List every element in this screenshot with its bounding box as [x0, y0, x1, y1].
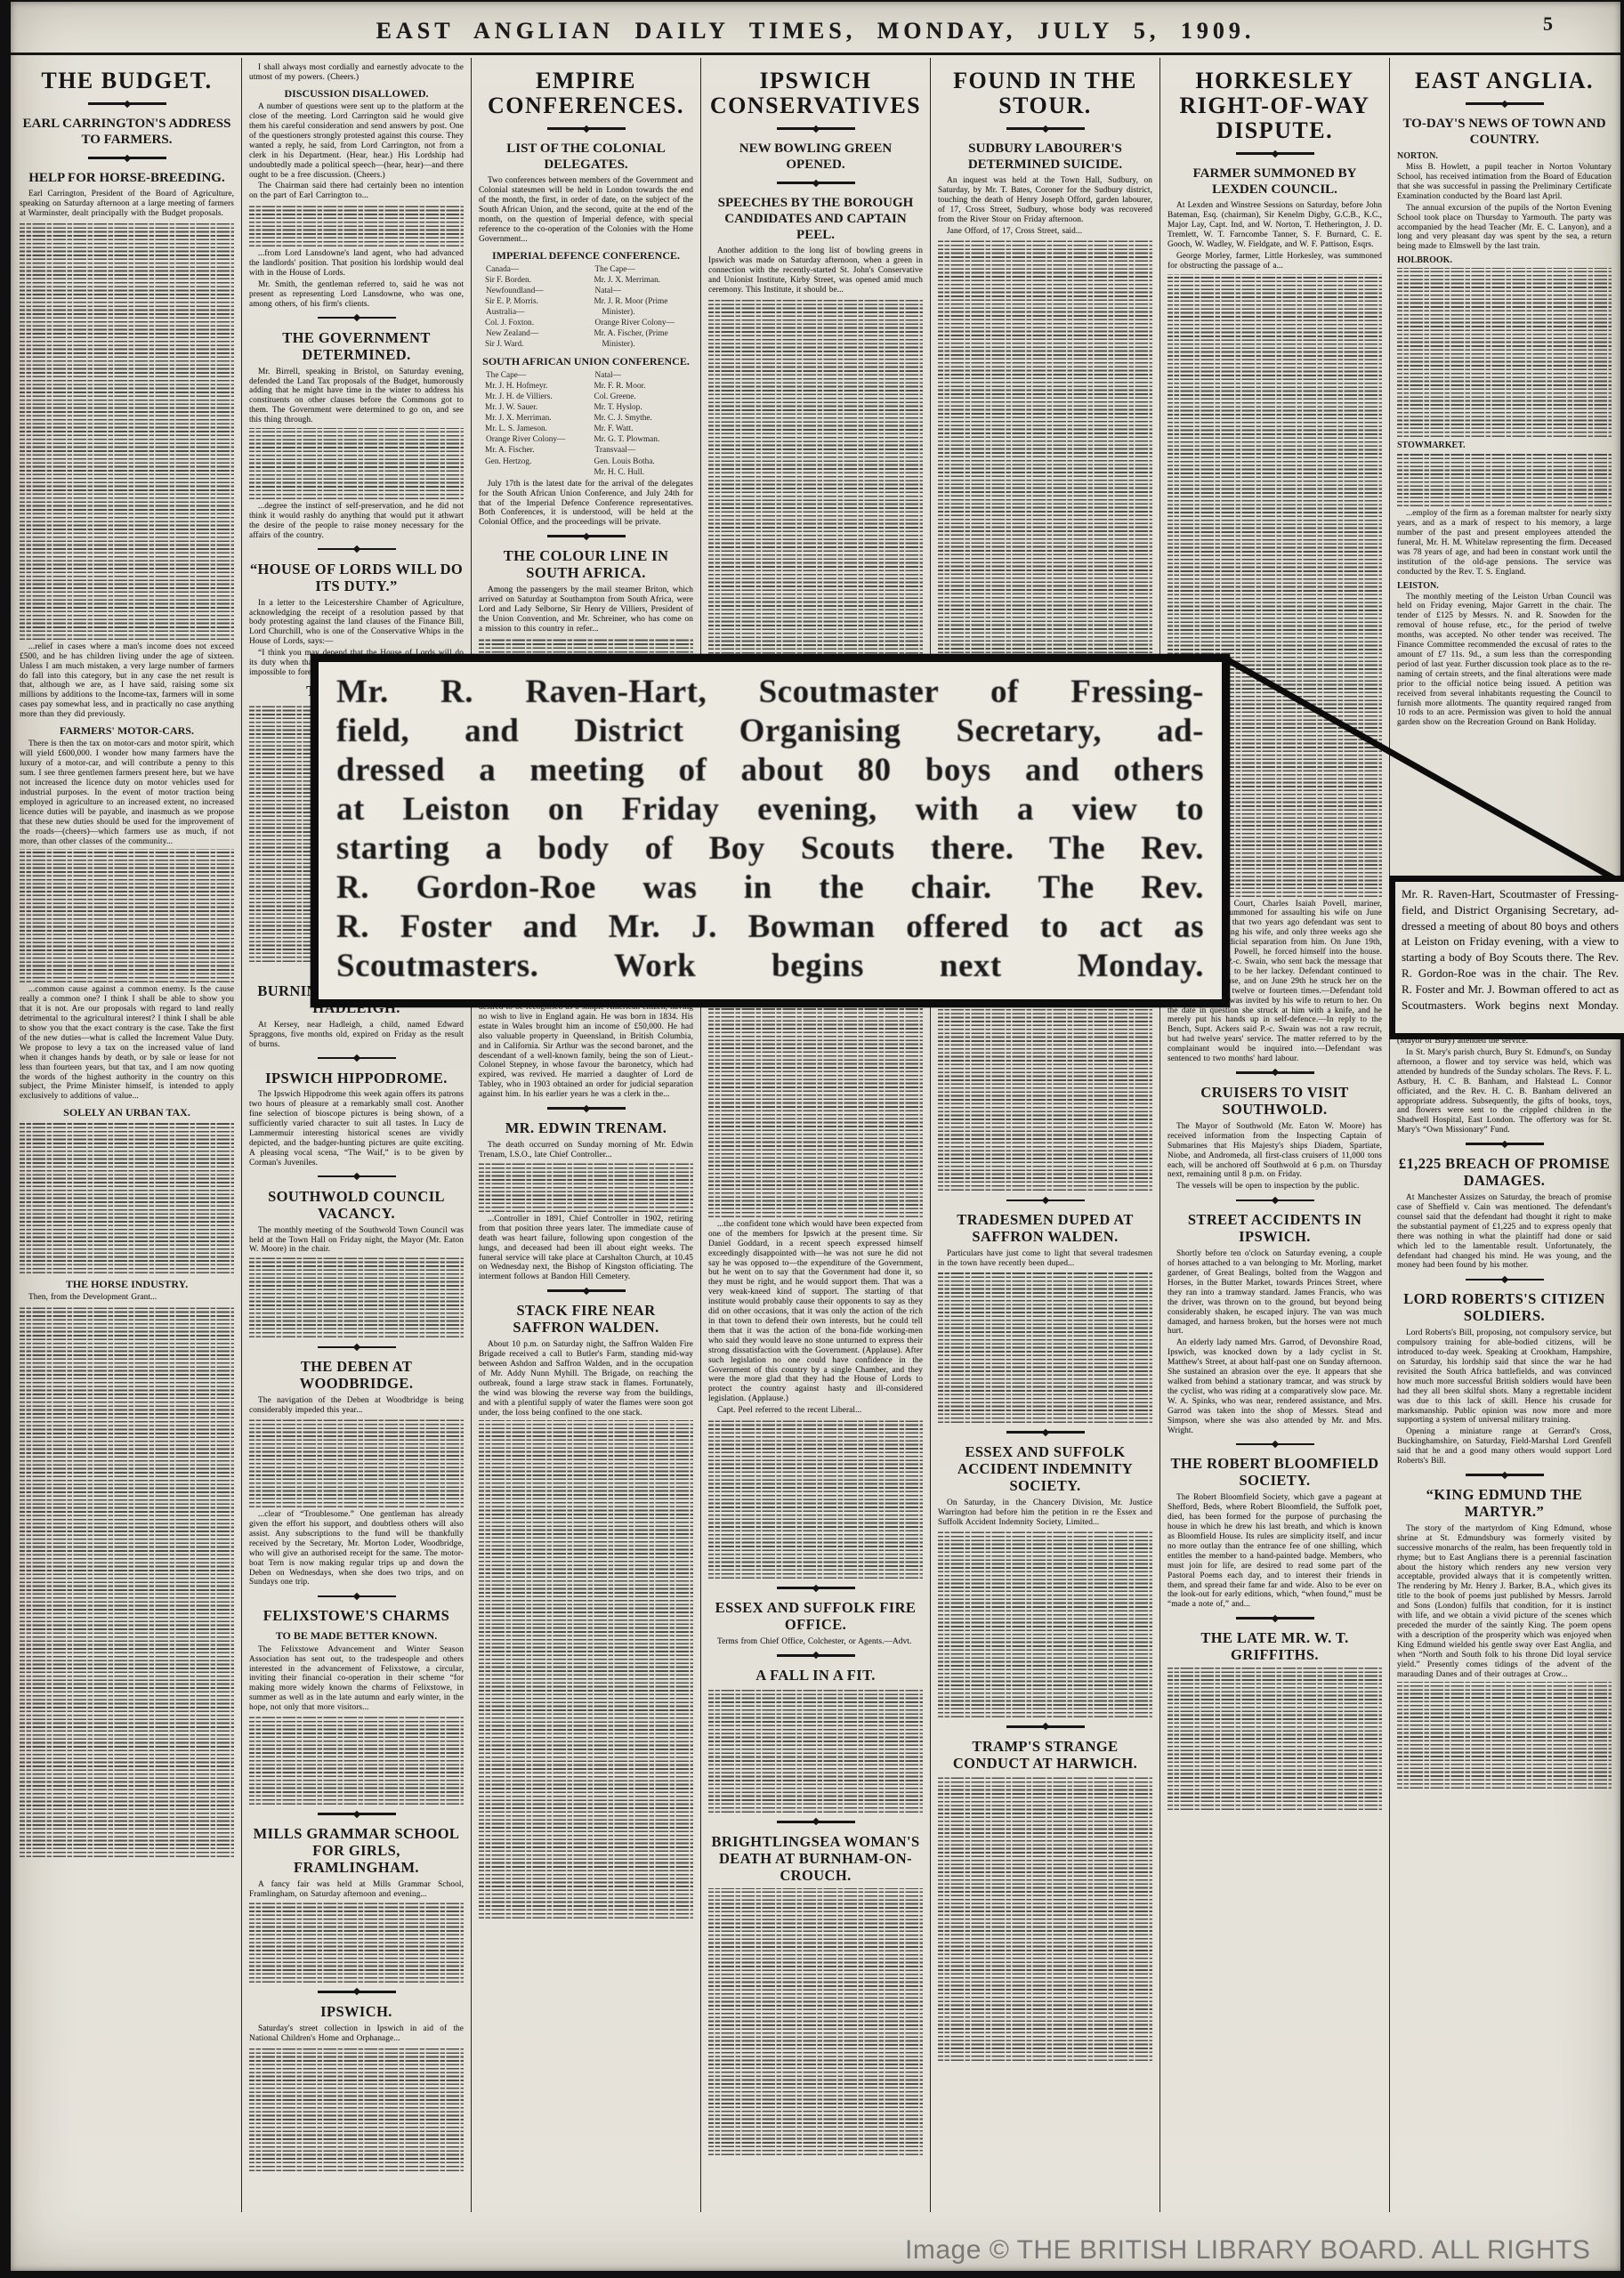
article-paragraph: There is then the tax on motor-cars and … — [20, 739, 234, 846]
article-paragraph: ...relief in cases where a man's income … — [20, 642, 234, 720]
delegate-list: Canada—Sir F. Borden.Newfoundland—Sir E.… — [479, 264, 693, 351]
delegate-list-right: The Cape—Mr. J. X. Merriman.Natal—Mr. J.… — [588, 264, 694, 351]
article-paragraph: ...degree the instinct of self-preservat… — [249, 502, 464, 541]
illegible-text-block — [1168, 1668, 1382, 1810]
clipping-text-line: field, and District Organising Secretary… — [1402, 902, 1619, 918]
article-separator-row — [249, 1340, 464, 1353]
article-separator — [777, 1821, 855, 1823]
article-separator-row — [479, 529, 693, 543]
article-separator-row — [708, 1581, 923, 1595]
illegible-text-block — [249, 428, 464, 499]
delegate-list: The Cape—Mr. J. H. Hofmeyr.Mr. J. H. de … — [479, 370, 693, 478]
clipping-text-line: R. Gordon-Roe was in the chair. The Rev. — [1402, 965, 1619, 981]
illegible-text-block — [708, 1688, 923, 1813]
article-paragraph: In St. Mary's parish church, Bury St. Ed… — [1397, 1048, 1612, 1135]
article-separator-row — [1168, 1612, 1382, 1625]
clipping-text-line: Scoutmasters. Work begins next Monday. — [1402, 998, 1619, 1014]
article-separator — [777, 182, 855, 184]
delegate-list-left: The Cape—Mr. J. H. Hofmeyr.Mr. J. H. de … — [479, 370, 585, 478]
article-paragraph: A fancy fair was held at Mills Grammar S… — [249, 1880, 464, 1900]
clipping-text-line: R. Gordon-Roe was in the chair. The Rev. — [336, 868, 1204, 908]
article-headline: FARMER SUMMONED BY LEXDEN COUNCIL. — [1168, 166, 1382, 198]
article-separator-row — [938, 1193, 1152, 1207]
article-paragraph: The annual excursion of the pupils of th… — [1397, 204, 1612, 253]
clipping-text-line: R. Foster and Mr. J. Bowman offered to a… — [1402, 981, 1619, 998]
illegible-text-block — [938, 239, 1152, 720]
delegate-entry: Mr. F. Watt. — [588, 424, 694, 434]
delegate-entry: Mr. L. S. Jameson. — [479, 424, 585, 434]
article-headline: THE ROBERT BLOOMFIELD SOCIETY. — [1168, 1456, 1382, 1490]
article-paragraph: The Ipswich Hippodrome this week again o… — [249, 1090, 464, 1167]
article-paragraph: Jane Offord, of 17, Cross Street, said..… — [938, 227, 1152, 237]
article-separator — [547, 535, 626, 537]
article-separator — [1006, 1725, 1085, 1728]
article-separator-row — [249, 1807, 464, 1821]
delegate-entry: Mr. G. T. Plowman. — [588, 434, 694, 445]
delegate-list-left: Canada—Sir F. Borden.Newfoundland—Sir E.… — [479, 264, 585, 351]
article-separator — [318, 1595, 396, 1598]
article-separator-row — [938, 122, 1152, 135]
delegate-entry: Sir F. Borden. — [479, 275, 585, 286]
article-headline: TO-DAY'S NEWS OF TOWN AND COUNTRY. — [1397, 116, 1612, 148]
article-headline: MILLS GRAMMAR SCHOOL FOR GIRLS, FRAMLING… — [249, 1826, 464, 1877]
clipping-text-line: Mr. R. Raven-Hart, Scoutmaster of Fressi… — [1402, 886, 1619, 902]
article-separator-row — [249, 1170, 464, 1183]
article-headline: EARL CARRINGTON'S ADDRESS TO FARMERS. — [20, 116, 234, 148]
article-separator-row — [708, 1815, 923, 1829]
delegate-entry: Mr. J. H. de Villiers. — [479, 392, 585, 402]
article-headline: SUDBURY LABOURER'S DETERMINED SUICIDE. — [938, 141, 1152, 173]
clipping-text-line: at Leiston on Friday evening, with a vie… — [1402, 933, 1619, 949]
masthead-rule — [11, 53, 1620, 55]
delegate-entry: Mr. J. W. Sauer. — [479, 402, 585, 413]
illegible-text-block — [1397, 1682, 1612, 1789]
column-3: EMPIRE CONFERENCES.LIST OF THE COLONIAL … — [472, 58, 701, 2212]
article-paragraph: Terms from Chief Office, Colchester, or … — [708, 1637, 923, 1647]
article-separator — [547, 1289, 626, 1292]
article-subhead: HOLBROOK. — [1397, 255, 1612, 265]
clipping-text-line: starting a body of Boy Scouts there. The… — [1402, 949, 1619, 965]
article-separator-row — [1168, 1437, 1382, 1450]
article-separator — [547, 1107, 626, 1110]
illegible-text-block — [20, 222, 234, 640]
article-paragraph: The vessels will be open to inspection b… — [1168, 1182, 1382, 1192]
delegate-entry: Gen. Louis Botha. — [588, 456, 694, 467]
article-subhead: TO BE MADE BETTER KNOWN. — [249, 1629, 464, 1642]
article-paragraph: July 17th is the latest date for the arr… — [479, 480, 693, 529]
article-separator-row — [249, 1052, 464, 1065]
article-separator-row — [1397, 1468, 1612, 1482]
article-separator — [318, 548, 396, 551]
clipping-text-line: starting a body of Boy Scouts there. The… — [336, 829, 1204, 868]
illegible-text-block — [938, 1776, 1152, 2061]
article-separator — [1236, 1443, 1314, 1446]
article-separator — [318, 1175, 396, 1178]
article-paragraph: Opening a miniature range at Gerrard's C… — [1397, 1427, 1612, 1466]
article-headline: LIST OF THE COLONIAL DELEGATES. — [479, 141, 693, 173]
article-headline: IPSWICH. — [249, 2004, 464, 2021]
article-separator — [777, 1654, 855, 1657]
article-paragraph: The Mayor of Southwold (Mr. Eaton W. Moo… — [1168, 1122, 1382, 1180]
article-separator-row — [708, 176, 923, 190]
article-separator-row — [938, 1720, 1152, 1733]
article-headline: MR. EDWIN TRENAM. — [479, 1120, 693, 1137]
article-separator-row — [1397, 1137, 1612, 1151]
article-paragraph: About 10 p.m. on Saturday night, the Saf… — [479, 1340, 693, 1418]
article-paragraph: Particulars have just come to light that… — [938, 1249, 1152, 1269]
article-separator-row — [20, 97, 234, 110]
article-paragraph: ...Controller in 1891, Chief Controller … — [479, 1215, 693, 1282]
article-separator-row — [1168, 1193, 1382, 1207]
article-separator-row — [938, 1426, 1152, 1439]
article-paragraph: Saturday's street collection in Ipswich … — [249, 2024, 464, 2044]
article-separator — [1466, 102, 1544, 105]
article-headline: THE GOVERNMENT DETERMINED. — [249, 330, 464, 364]
article-separator-row — [479, 1284, 693, 1297]
delegate-entry: Orange River Colony— — [588, 318, 694, 328]
article-separator-row — [708, 122, 923, 135]
article-separator — [318, 1991, 396, 1993]
masthead-title: EAST ANGLIAN DAILY TIMES, MONDAY, JULY 5… — [11, 20, 1620, 43]
article-subhead: FARMERS' MOTOR-CARS. — [20, 724, 234, 737]
delegate-entry: Mr. J. R. Moor (Prime Minister). — [588, 296, 694, 318]
article-separator — [1006, 127, 1085, 130]
article-headline: LORD ROBERTS'S CITIZEN SOLDIERS. — [1397, 1291, 1612, 1325]
article-paragraph: The Chairman said there had certainly be… — [249, 182, 464, 201]
article-paragraph: The navigation of the Deben at Woodbridg… — [249, 1396, 464, 1416]
original-clipping-box: Mr. R. Raven-Hart, Scoutmaster of Fressi… — [1389, 876, 1624, 1039]
article-paragraph: The story of the martyrdom of King Edmun… — [1397, 1524, 1612, 1680]
article-separator-row — [1397, 1272, 1612, 1286]
article-separator — [777, 127, 855, 130]
clipping-text-line: dressed a meeting of about 80 boys and o… — [1402, 918, 1619, 934]
article-separator — [1006, 1431, 1085, 1434]
column-6: HORKESLEY RIGHT-OF-WAY DISPUTE.FARMER SU… — [1160, 58, 1390, 2212]
delegate-entry: Mr. C. J. Smythe. — [588, 413, 694, 424]
article-separator — [318, 1813, 396, 1815]
article-separator-row — [249, 1589, 464, 1603]
delegate-entry: Newfoundland— — [479, 286, 585, 296]
article-separator — [1236, 1200, 1314, 1202]
article-separator — [1466, 1279, 1544, 1281]
delegate-entry: The Cape— — [479, 370, 585, 381]
article-paragraph: At Lexden and Winstree Sessions on Satur… — [1168, 201, 1382, 250]
article-headline: £1,225 BREACH OF PROMISE DAMAGES. — [1397, 1156, 1612, 1190]
article-separator-row — [1168, 147, 1382, 160]
delegate-entry: Sir J. Ward. — [479, 339, 585, 350]
article-paragraph: Among the passengers by the mail steamer… — [479, 586, 693, 634]
delegate-entry: Col. Greene. — [588, 392, 694, 402]
article-paragraph: Another addition to the long list of bow… — [708, 246, 923, 295]
clipping-text-line: Mr. R. Raven-Hart, Scoutmaster of Fressi… — [336, 673, 1204, 712]
article-separator — [1006, 1200, 1085, 1202]
article-subhead: SOLELY AN URBAN TAX. — [20, 1106, 234, 1119]
delegate-entry: Col. J. Foxton. — [479, 318, 585, 328]
delegate-entry: Sir E. P. Morris. — [479, 296, 585, 307]
illegible-text-block — [249, 1902, 464, 1983]
delegate-entry: Mr. A. Fischer. — [479, 445, 585, 456]
article-headline: TRAMP'S STRANGE CONDUCT AT HARWICH. — [938, 1739, 1152, 1773]
article-headline: “HOUSE OF LORDS WILL DO ITS DUTY.” — [249, 561, 464, 595]
illegible-text-block — [938, 1531, 1152, 1717]
article-paragraph: At Kersey, near Hadleigh, a child, named… — [249, 1021, 464, 1050]
article-headline: IPSWICH CONSERVATIVES — [708, 69, 923, 118]
illegible-text-block — [249, 1418, 464, 1507]
column-5: FOUND IN THE STOUR.SUDBURY LABOURER'S DE… — [931, 58, 1160, 2212]
delegate-entry: Transvaal— — [588, 445, 694, 456]
delegate-entry: Mr. H. C. Hull. — [588, 467, 694, 478]
article-paragraph: Then, from the Development Grant... — [20, 1293, 234, 1303]
article-paragraph: The Felixstowe Advancement and Winter Se… — [249, 1645, 464, 1713]
article-separator — [777, 1587, 855, 1589]
article-subhead: LEISTON. — [1397, 581, 1612, 591]
article-separator-row — [479, 122, 693, 135]
delegate-list-right: Natal—Mr. F. R. Moor.Col. Greene.Mr. T. … — [588, 370, 694, 478]
article-headline: THE DEBEN AT WOODBRIDGE. — [249, 1359, 464, 1393]
article-paragraph: ...clear of “Troublesome.” One gentleman… — [249, 1510, 464, 1587]
illegible-text-block — [938, 1272, 1152, 1423]
article-paragraph: Shortly before ten o'clock on Saturday e… — [1168, 1249, 1382, 1337]
delegate-entry: Mr. T. Hyslop. — [588, 402, 694, 413]
illegible-text-block — [20, 1122, 234, 1273]
article-separator — [318, 1346, 396, 1349]
column-7: EAST ANGLIA.TO-DAY'S NEWS OF TOWN AND CO… — [1390, 58, 1619, 2212]
article-headline: ESSEX AND SUFFOLK FIRE OFFICE. — [708, 1600, 923, 1634]
illegible-text-block — [249, 1716, 464, 1805]
article-separator — [1236, 1617, 1314, 1620]
article-separator-row — [479, 1102, 693, 1115]
article-separator-row — [249, 1985, 464, 1999]
article-separator — [1236, 1071, 1314, 1074]
article-separator-row — [1397, 97, 1612, 110]
article-paragraph: The death occurred on Sunday morning of … — [479, 1141, 693, 1160]
illegible-text-block — [479, 1420, 693, 1919]
column-1: THE BUDGET.EARL CARRINGTON'S ADDRESS TO … — [12, 58, 242, 2212]
article-separator — [1466, 1474, 1544, 1476]
article-headline: “KING EDMUND THE MARTYR.” — [1397, 1487, 1612, 1521]
article-headline: STACK FIRE NEAR SAFFRON WALDEN. — [479, 1303, 693, 1337]
article-headline: A FALL IN A FIT. — [708, 1668, 923, 1684]
article-subhead: NORTON. — [1397, 151, 1612, 161]
article-paragraph: A number of questions were sent up to th… — [249, 102, 464, 180]
delegate-entry: Mr. F. R. Moor. — [588, 381, 694, 392]
delegate-entry: Gen. Hertzog. — [479, 456, 585, 467]
article-separator-row — [249, 543, 464, 556]
newspaper-page: 5 EAST ANGLIAN DAILY TIMES, MONDAY, JULY… — [11, 2, 1620, 2271]
article-paragraph: Mr. Birrell, speaking in Bristol, on Sat… — [249, 368, 464, 425]
delegate-entry: The Cape— — [588, 264, 694, 275]
clipping-text-line: dressed a meeting of about 80 boys and o… — [336, 751, 1204, 790]
illegible-text-block — [249, 204, 464, 246]
article-paragraph: Lord Roberts's Bill, proposing, not comp… — [1397, 1329, 1612, 1426]
article-separator — [88, 102, 166, 105]
illegible-text-block — [249, 1257, 464, 1337]
illegible-text-block — [20, 849, 234, 982]
article-headline: STREET ACCIDENTS IN IPSWICH. — [1168, 1212, 1382, 1246]
article-paragraph: Earl Carrington, President of the Board … — [20, 190, 234, 219]
delegate-entry: Natal— — [588, 370, 694, 381]
article-subhead: DISCUSSION DISALLOWED. — [249, 87, 464, 100]
illegible-text-block — [249, 2047, 464, 2171]
illegible-text-block — [708, 1418, 923, 1579]
article-paragraph: The monthly meeting of the Southwold Tow… — [249, 1226, 464, 1256]
delegate-entry: Mr. J. X. Merriman. — [588, 275, 694, 286]
clipping-text-line: at Leiston on Friday evening, with a vie… — [336, 790, 1204, 829]
delegate-entry: Mr. J. H. Hofmeyr. — [479, 381, 585, 392]
illegible-text-block — [20, 1305, 234, 1857]
article-paragraph: At Manchester Assizes on Saturday, the b… — [1397, 1193, 1612, 1271]
article-headline: FELIXSTOWE'S CHARMS — [249, 1608, 464, 1625]
article-headline: NEW BOWLING GREEN OPENED. — [708, 141, 923, 173]
article-paragraph: I shall always most cordially and earnes… — [249, 63, 464, 83]
article-paragraph: Capt. Peel referred to the recent Libera… — [708, 1406, 923, 1416]
delegate-entry: Mr. J. X. Merriman. — [479, 413, 585, 424]
article-paragraph: On Saturday, in the Chancery Division, M… — [938, 1498, 1152, 1528]
article-paragraph: George Morley, farmer, Little Horkesley,… — [1168, 252, 1382, 271]
article-headline: ESSEX AND SUFFOLK ACCIDENT INDEMNITY SOC… — [938, 1444, 1152, 1495]
article-headline: BRIGHTLINGSEA WOMAN'S DEATH AT BURNHAM-O… — [708, 1834, 923, 1885]
delegate-entry: Mr. A. Fischer, (Prime Minister). — [588, 328, 694, 350]
article-headline: EAST ANGLIA. — [1397, 69, 1612, 93]
column-2: I shall always most cordially and earnes… — [242, 58, 472, 2212]
article-headline: THE COLOUR LINE IN SOUTH AFRICA. — [479, 548, 693, 582]
article-headline: THE LATE MR. W. T. GRIFFITHS. — [1168, 1630, 1382, 1664]
article-separator-row — [20, 151, 234, 165]
article-separator-row — [708, 1649, 923, 1662]
article-headline: SPEECHES BY THE BOROUGH CANDIDATES AND C… — [708, 195, 923, 243]
article-separator — [1236, 152, 1314, 155]
article-paragraph: The monthly meeting of the Leiston Urban… — [1397, 593, 1612, 729]
article-separator — [318, 317, 396, 319]
magnified-clipping-box: Mr. R. Raven-Hart, Scoutmaster of Fressi… — [311, 654, 1230, 1007]
article-subhead: THE HORSE INDUSTRY. — [20, 1278, 234, 1290]
article-headline: FOUND IN THE STOUR. — [938, 69, 1152, 118]
article-headline: IPSWICH HIPPODROME. — [249, 1070, 464, 1087]
article-separator — [318, 1057, 396, 1060]
article-paragraph: Mr. Smith, the gentleman referred to, sa… — [249, 280, 464, 310]
clipping-text-line: R. Foster and Mr. J. Bowman offered to a… — [336, 908, 1204, 947]
article-headline: TRADESMEN DUPED AT SAFFRON WALDEN. — [938, 1212, 1152, 1246]
article-separator — [1466, 1143, 1544, 1145]
article-paragraph: Two conferences between members of the G… — [479, 176, 693, 244]
article-headline: CRUISERS TO VISIT SOUTHWOLD. — [1168, 1085, 1382, 1119]
column-4: IPSWICH CONSERVATIVESNEW BOWLING GREEN O… — [701, 58, 931, 2212]
article-separator — [547, 127, 626, 130]
article-headline: HORKESLEY RIGHT-OF-WAY DISPUTE. — [1168, 69, 1382, 143]
clipping-text-line: field, and District Organising Secretary… — [336, 712, 1204, 751]
article-paragraph: ...employ of the firm as a foreman malts… — [1397, 509, 1612, 577]
article-subhead: SOUTH AFRICAN UNION CONFERENCE. — [479, 355, 693, 368]
newspaper-scan: { "masthead": { "title": "EAST ANGLIAN D… — [0, 0, 1624, 2278]
article-headline: EMPIRE CONFERENCES. — [479, 69, 693, 118]
article-paragraph: The Robert Bloomfield Society, which gav… — [1168, 1493, 1382, 1610]
article-paragraph: ...the confident tone which would have b… — [708, 1220, 923, 1404]
article-headline: SOUTHWOLD COUNCIL VACANCY. — [249, 1189, 464, 1223]
library-watermark: Image © THE BRITISH LIBRARY BOARD. ALL R… — [905, 2235, 1590, 2266]
clipping-text-line: Scoutmasters. Work begins next Monday. — [336, 947, 1204, 986]
article-separator — [88, 157, 166, 159]
delegate-entry: Natal— — [588, 286, 694, 296]
article-paragraph: An elderly lady named Mrs. Garrod, of De… — [1168, 1338, 1382, 1435]
illegible-text-block — [1397, 268, 1612, 437]
article-paragraph: ...common cause against a common enemy. … — [20, 985, 234, 1102]
column-grid: THE BUDGET.EARL CARRINGTON'S ADDRESS TO … — [12, 58, 1619, 2212]
article-paragraph: In a letter to the Leicestershire Chambe… — [249, 599, 464, 648]
illegible-text-block — [479, 1163, 693, 1212]
illegible-text-block — [708, 1888, 923, 2155]
delegate-entry: Orange River Colony— — [479, 434, 585, 445]
article-subhead: IMPERIAL DEFENCE CONFERENCE. — [479, 249, 693, 262]
article-headline: THE BUDGET. — [20, 69, 234, 93]
illegible-text-block — [1397, 453, 1612, 506]
delegate-entry: Canada— — [479, 264, 585, 275]
article-paragraph: An inquest was held at the Town Hall, Su… — [938, 176, 1152, 225]
delegate-entry: Australia— — [479, 307, 585, 318]
article-headline: HELP FOR HORSE-BREEDING. — [20, 170, 234, 186]
article-separator-row — [1168, 1066, 1382, 1079]
article-paragraph: ...from Lord Lansdowne's land agent, who… — [249, 249, 464, 279]
article-paragraph: Miss B. Howlett, a pupil teacher in Nort… — [1397, 163, 1612, 202]
article-separator-row — [249, 311, 464, 325]
delegate-entry: New Zealand— — [479, 328, 585, 339]
article-subhead: STOWMARKET. — [1397, 440, 1612, 450]
